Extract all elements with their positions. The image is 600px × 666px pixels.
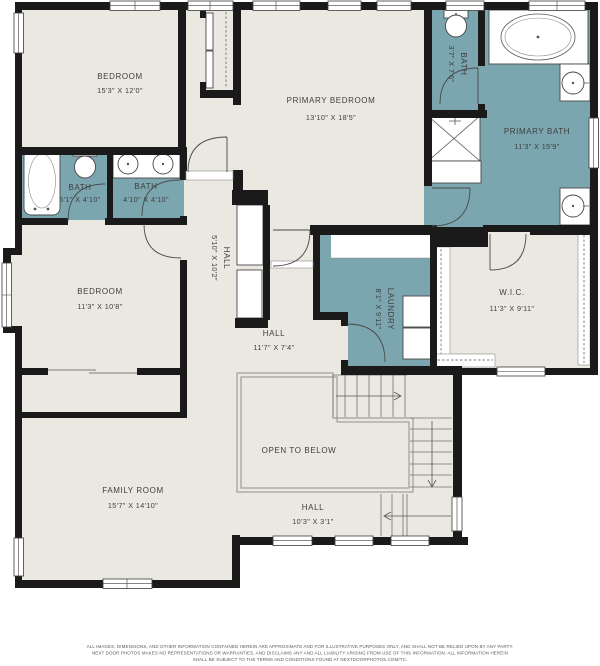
room-dims-primary-bedroom: 13'10" X 18'5" bbox=[306, 113, 356, 122]
window bbox=[497, 367, 545, 376]
window bbox=[253, 1, 300, 11]
room-label-hall-lower: HALL bbox=[302, 503, 324, 512]
floor-plan-canvas: BEDROOM 15'3" X 12'0" PRIMARY BEDROOM 13… bbox=[0, 0, 600, 666]
room-dims-primary-bath: 11'3" X 15'9" bbox=[514, 142, 559, 151]
room-label-primary-bath: PRIMARY BATH bbox=[504, 127, 570, 136]
room-label-bedroom2: BEDROOM bbox=[77, 287, 123, 296]
room-label-primary-bedroom: PRIMARY BEDROOM bbox=[287, 96, 376, 105]
shower bbox=[428, 116, 480, 161]
footer-line-2: NEXT DOOR PHOTOS MAKES NO REPRESENTATION… bbox=[92, 651, 508, 656]
sink bbox=[560, 188, 590, 225]
room-dims-wic: 11'3" X 9'11" bbox=[490, 304, 535, 313]
room-label-bath-small: BATH bbox=[459, 52, 468, 75]
window bbox=[452, 497, 462, 531]
window bbox=[14, 538, 24, 576]
window bbox=[328, 1, 361, 11]
window bbox=[335, 536, 373, 546]
room-label-open-below: OPEN TO BELOW bbox=[262, 446, 337, 455]
sink bbox=[560, 64, 590, 101]
toilet bbox=[444, 10, 468, 37]
window bbox=[14, 13, 24, 53]
window bbox=[529, 1, 585, 11]
soaking-tub bbox=[489, 10, 588, 64]
room-dims-bath-b: 4'10" X 4'10" bbox=[123, 195, 169, 204]
window bbox=[589, 118, 599, 168]
room-dims-bath-a: 5'1" X 4'10" bbox=[59, 195, 100, 204]
shower-bench bbox=[431, 161, 481, 183]
window bbox=[188, 1, 233, 11]
window bbox=[391, 536, 429, 546]
footer-disclaimer: ALL IMAGES, DIMENSIONS, AND OTHER INFORM… bbox=[87, 644, 514, 662]
window bbox=[103, 579, 152, 589]
room-label-bedroom1: BEDROOM bbox=[97, 72, 143, 81]
room-label-bath-a: BATH bbox=[68, 183, 91, 192]
room-dims-hall-lower: 10'3" X 3'1" bbox=[292, 517, 333, 526]
room-label-hall-upper: HALL bbox=[222, 247, 231, 269]
room-dims-hall-upper: 5'10" X 10'2" bbox=[210, 235, 219, 281]
footer-line-3: SHALL BE SUBJECT TO THE TERMS AND CONDIT… bbox=[193, 657, 408, 662]
window bbox=[446, 1, 484, 11]
laundry-counter bbox=[331, 232, 430, 258]
room-dims-family-room: 15'7" X 14'10" bbox=[108, 501, 158, 510]
floor-plan-page: BEDROOM 15'3" X 12'0" PRIMARY BEDROOM 13… bbox=[0, 0, 600, 666]
footer-line-1: ALL IMAGES, DIMENSIONS, AND OTHER INFORM… bbox=[87, 644, 514, 649]
bathtub bbox=[24, 149, 60, 215]
room-dims-bedroom1: 15'3" X 12'0" bbox=[97, 86, 143, 95]
room-label-hall-mid: HALL bbox=[263, 329, 285, 338]
linen-closet bbox=[237, 205, 263, 318]
room-dims-laundry: 8'1" X 9'11" bbox=[374, 289, 383, 330]
room-dims-bedroom2: 11'3" X 10'8" bbox=[77, 302, 122, 311]
window bbox=[110, 1, 160, 11]
room-dims-bath-small: 3'7" X 7'6" bbox=[447, 45, 456, 82]
window bbox=[2, 263, 12, 327]
room-label-wic: W.I.C. bbox=[499, 288, 524, 297]
room-dims-hall-mid: 11'7" X 7'4" bbox=[254, 343, 295, 352]
room-label-bath-b: BATH bbox=[134, 182, 157, 191]
room-label-family-room: FAMILY ROOM bbox=[102, 486, 163, 495]
window bbox=[377, 1, 411, 11]
room-label-laundry: LAUNDRY bbox=[386, 288, 395, 330]
window bbox=[273, 536, 312, 546]
